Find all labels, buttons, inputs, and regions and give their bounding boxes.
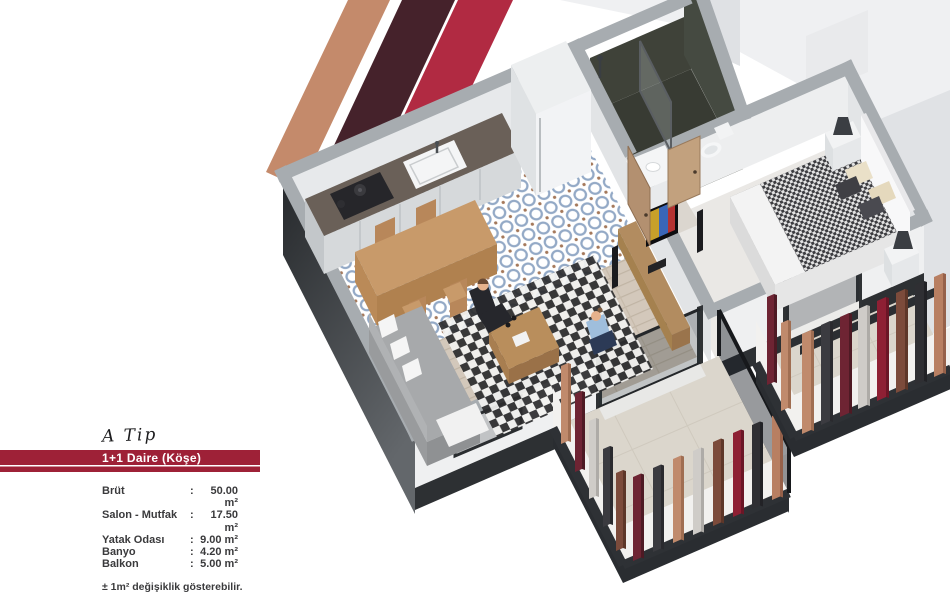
- area-value: 9.00 m²: [198, 534, 238, 546]
- area-label: Salon - Mutfak: [102, 509, 190, 533]
- area-label: Banyo: [102, 546, 190, 558]
- tolerance-note: ± 1m² değişiklik gösterebilir.: [102, 581, 260, 593]
- area-value: 17.50 m²: [198, 509, 238, 533]
- area-label: Brüt: [102, 485, 190, 509]
- area-colon: :: [190, 485, 198, 509]
- area-value: 5.00 m²: [198, 558, 238, 570]
- area-label: Balkon: [102, 558, 190, 570]
- area-colon: :: [190, 546, 198, 558]
- area-label: Yatak Odası: [102, 534, 190, 546]
- area-value: 50.00 m²: [198, 485, 238, 509]
- area-row: Salon - Mutfak : 17.50 m²: [102, 509, 238, 533]
- apartment-info-panel: A Tip 1+1 Daire (Köşe) Brüt : 50.00 m² S…: [0, 424, 260, 593]
- area-colon: :: [190, 534, 198, 546]
- speaker: [697, 209, 703, 253]
- speaker: [612, 245, 618, 289]
- area-row: Yatak Odası : 9.00 m²: [102, 534, 238, 546]
- area-value: 4.20 m²: [198, 546, 238, 558]
- area-row: Banyo : 4.20 m²: [102, 546, 238, 558]
- area-table: Brüt : 50.00 m² Salon - Mutfak : 17.50 m…: [102, 485, 238, 570]
- area-row: Brüt : 50.00 m²: [102, 485, 238, 509]
- area-colon: :: [190, 509, 198, 533]
- type-label: A Tip: [102, 421, 261, 449]
- area-row: Balkon : 5.00 m²: [102, 558, 238, 570]
- unit-type-banner: 1+1 Daire (Köşe): [0, 450, 260, 472]
- area-colon: :: [190, 558, 198, 570]
